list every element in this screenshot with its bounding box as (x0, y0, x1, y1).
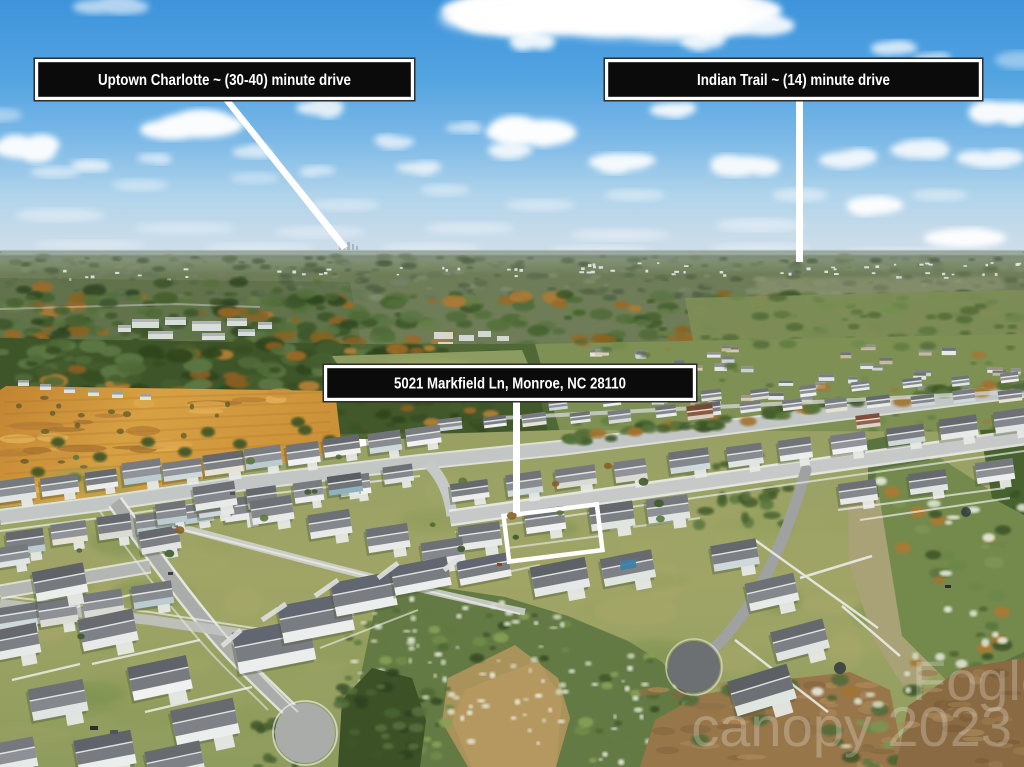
svg-text:Uptown Charlotte ~ (30-40) min: Uptown Charlotte ~ (30-40) minute drive (98, 72, 351, 89)
svg-text:Indian Trail ~ (14) minute dri: Indian Trail ~ (14) minute drive (697, 72, 890, 89)
svg-text:canopy 2023: canopy 2023 (691, 695, 1012, 758)
svg-text:5021 Markfield Ln, Monroe, NC: 5021 Markfield Ln, Monroe, NC 28110 (394, 376, 626, 393)
